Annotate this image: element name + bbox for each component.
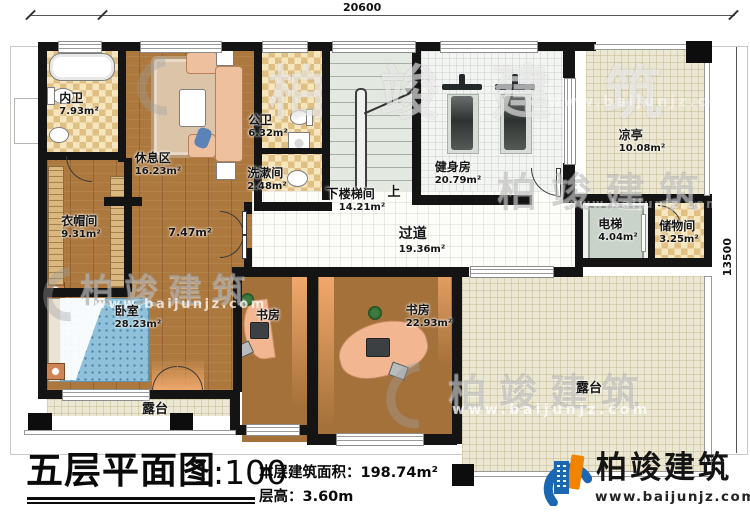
wall [118, 42, 126, 162]
stairs-up-label: 上 [387, 186, 400, 199]
wall [563, 194, 712, 203]
title-underline [27, 497, 255, 500]
sink [49, 127, 69, 143]
room-label-loutijian: 楼梯间14.21m² [339, 188, 385, 213]
column [452, 464, 474, 486]
room-label-lutai-right: 露台 [576, 382, 602, 395]
wall [38, 42, 47, 398]
treadmill-deck [451, 96, 473, 150]
wall [232, 267, 469, 277]
window [470, 266, 554, 278]
column [170, 413, 193, 430]
brand-logo: 柏竣建筑 www.baijunjz.com [536, 446, 746, 512]
brand-logo-icon [536, 448, 592, 506]
room-label-liangting: 凉亭10.08m² [619, 129, 665, 154]
floor-height-row: 层高：3.60m [259, 490, 353, 505]
bathtub [49, 53, 115, 81]
room-label-gongwei: 公卫6.32m² [248, 114, 287, 139]
plant-icon [241, 293, 254, 306]
side-table [216, 162, 236, 180]
window [564, 78, 576, 165]
treadmill-stem-icon [459, 74, 465, 86]
window [332, 41, 416, 53]
room-label-hall-area: 7.47m² [168, 227, 211, 238]
window [336, 433, 424, 446]
wall [254, 148, 328, 154]
room-floor-stairwell [330, 51, 412, 191]
wall [563, 163, 575, 198]
floor-area-value: 198.74m² [361, 465, 438, 481]
wall [322, 42, 330, 200]
nightstand [46, 363, 65, 380]
window [58, 41, 102, 53]
window [246, 424, 300, 436]
brand-url: www.baijunjz.com [595, 491, 750, 505]
treadmill-deck [504, 96, 526, 150]
room-label-shufang-left: 书房 [256, 309, 280, 321]
room-label-yimaojian: 衣帽间9.31m² [61, 215, 100, 240]
dimension-line-right [736, 47, 737, 453]
wall [552, 267, 583, 277]
room-label-lutai-left: 露台 [142, 403, 168, 416]
room-floor-pavilion [586, 48, 704, 194]
room-label-dianti: 电梯4.04m² [598, 218, 637, 243]
wall [575, 203, 583, 263]
wall [104, 197, 142, 206]
room-label-woshi: 卧室28.23m² [115, 305, 161, 330]
door-leaf [242, 235, 247, 259]
floor-area-row: 本层建筑面积：198.74m² [259, 466, 438, 481]
window [262, 41, 308, 53]
room-label-neiwei: 内卫7.93m² [59, 92, 98, 117]
brand-name: 柏竣建筑 [596, 453, 732, 484]
stairs-down-label: 下 [325, 188, 338, 201]
floor-height-value: 3.60m [303, 489, 354, 505]
door-leaf [242, 211, 247, 235]
wall [648, 203, 655, 259]
window [140, 41, 222, 53]
room-label-xiuxiqu: 休息区16.23m² [135, 152, 181, 177]
ac-platform [14, 98, 40, 144]
dimension-right-label: 13500 [722, 235, 733, 279]
door-glow [319, 277, 334, 427]
floor-plan-canvas: 20600 13500 [0, 0, 750, 517]
title-underline [27, 502, 255, 504]
terrace-railing [704, 276, 712, 474]
room-floor-terrace-left [47, 399, 231, 416]
window [440, 41, 538, 53]
elevator-door-line [641, 214, 646, 252]
computer-monitor-icon [366, 338, 390, 357]
door-glow [292, 277, 307, 407]
plant-icon [368, 306, 382, 320]
wall [307, 267, 318, 440]
dimension-top-label: 20600 [340, 2, 384, 13]
floor-area-label: 本层建筑面积： [259, 465, 361, 481]
toilet-tank [47, 87, 55, 105]
room-label-shufang-right: 书房22.93m² [406, 304, 452, 329]
column [28, 413, 52, 430]
dimension-line-top [30, 15, 735, 16]
wall [254, 202, 332, 211]
sofa-sectional [215, 66, 243, 162]
wall [412, 195, 532, 205]
pavilion-railing [594, 44, 688, 50]
sink [287, 170, 308, 187]
room-label-guodao: 过道19.36m² [399, 227, 445, 255]
floor-height-label: 层高： [259, 489, 303, 505]
terrace-railing [24, 430, 236, 435]
wall [704, 194, 712, 267]
treadmill-stem-icon [512, 74, 518, 86]
room-label-xishujian: 洗漱间2.48m² [247, 167, 286, 192]
wall [452, 267, 462, 444]
room-label-jianshenfang: 健身房20.79m² [435, 161, 481, 186]
plan-title: 五层平面图 [26, 452, 216, 489]
wall [563, 42, 575, 78]
column [686, 41, 712, 63]
pavilion-railing [704, 46, 710, 196]
room-label-chuwujian: 储物间3.25m² [659, 220, 698, 245]
stair-rail [355, 88, 367, 194]
door-leaf [556, 168, 561, 197]
room-floor-terrace-right [462, 276, 704, 472]
wall [575, 258, 712, 267]
toilet-tank [306, 109, 313, 126]
computer-monitor-icon [250, 322, 269, 339]
window [62, 389, 150, 401]
wall [233, 277, 242, 392]
wall [124, 158, 132, 292]
wall [412, 42, 421, 202]
